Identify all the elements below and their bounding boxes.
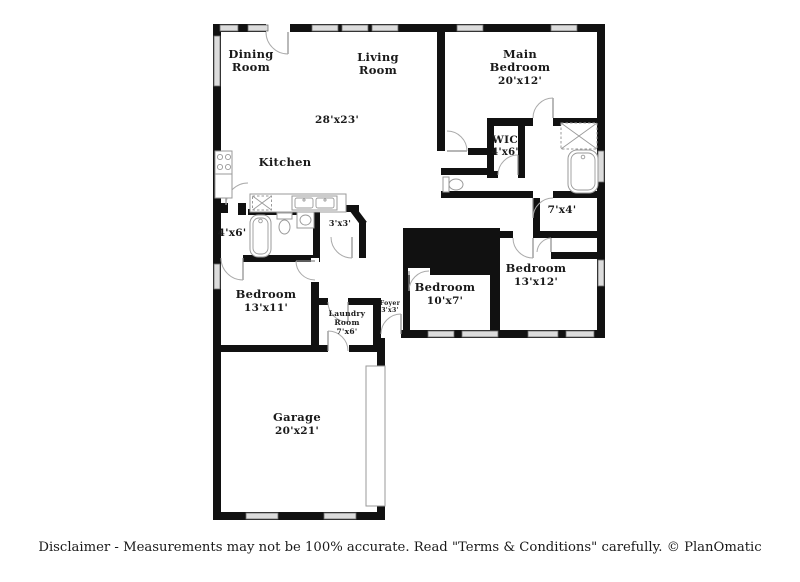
window [248, 25, 268, 31]
room-label-laundry: Room [334, 318, 359, 327]
floor-plan: Dining Room Living Room 28'x23' Main Bed… [0, 0, 800, 582]
disclaimer-text: Disclaimer - Measurements may not be 100… [38, 540, 761, 555]
bathroom-sink [297, 212, 314, 228]
room-label-living: Living [357, 50, 399, 64]
door-arc [513, 238, 533, 258]
stove [215, 151, 232, 198]
room-label-dining: Room [232, 60, 270, 74]
kitchen-counter [250, 194, 346, 212]
room-label-kitchen: Kitchen [259, 155, 312, 169]
window [598, 260, 604, 286]
room-label-bedroom3: Bedroom [415, 280, 476, 294]
door-arc [331, 237, 352, 258]
room-label-dining: Dining [228, 47, 273, 61]
window [528, 331, 558, 337]
room-label-bedroom2: Bedroom [236, 287, 297, 301]
door-arc [537, 238, 551, 252]
floor-plan-page: Dining Room Living Room 28'x23' Main Bed… [0, 0, 800, 582]
window [312, 25, 338, 31]
window [220, 25, 238, 31]
door-arc [221, 258, 243, 280]
toilet [443, 177, 463, 192]
room-dims-bedroom3: 10'x7' [427, 295, 463, 307]
room-dims-living: 28'x23' [315, 114, 359, 126]
room-dims-hall: 7'x4' [548, 204, 577, 216]
room-label-wic: WIC [491, 134, 518, 146]
window [566, 331, 594, 337]
window [214, 36, 220, 86]
room-label-main-bedroom: Bedroom [490, 60, 551, 74]
window [457, 25, 483, 31]
room-dims-foyer: 3'x3' [381, 307, 399, 314]
room-label-laundry: Laundry [329, 309, 366, 318]
room-dims-garage: 20'x21' [275, 425, 319, 437]
garage-door [366, 366, 385, 506]
door-arc [447, 131, 467, 151]
window [342, 25, 368, 31]
bathtub [250, 215, 271, 257]
door-arc [533, 98, 553, 118]
pantry-angled-wall [352, 208, 364, 224]
window [214, 264, 220, 289]
toilet [277, 213, 292, 234]
window [551, 25, 577, 31]
room-dims-pantry: 3'x3' [329, 218, 351, 228]
room-label-foyer: Foyer [380, 300, 401, 307]
room-label-living: Room [359, 63, 397, 77]
room-label-main-bedroom: Main [503, 47, 537, 61]
window [246, 513, 278, 519]
room-label-bedroom4: Bedroom [506, 261, 567, 275]
window [324, 513, 356, 519]
room-dims-hall-bath: 4'x6' [218, 227, 247, 239]
room-dims-main-bedroom: 20'x12' [498, 75, 542, 87]
room-label-garage: Garage [273, 410, 321, 424]
shower [561, 123, 597, 149]
room-dims-bedroom4: 13'x12' [514, 276, 558, 288]
solid-black-area [403, 228, 490, 268]
window [462, 331, 498, 337]
room-dims-bedroom2: 13'x11' [244, 302, 288, 314]
window [428, 331, 454, 337]
room-dims-wic: 4'x6' [491, 147, 519, 158]
room-dims-laundry: 7'x6' [336, 327, 357, 336]
window [372, 25, 398, 31]
window [598, 151, 604, 182]
bathtub [568, 150, 598, 193]
